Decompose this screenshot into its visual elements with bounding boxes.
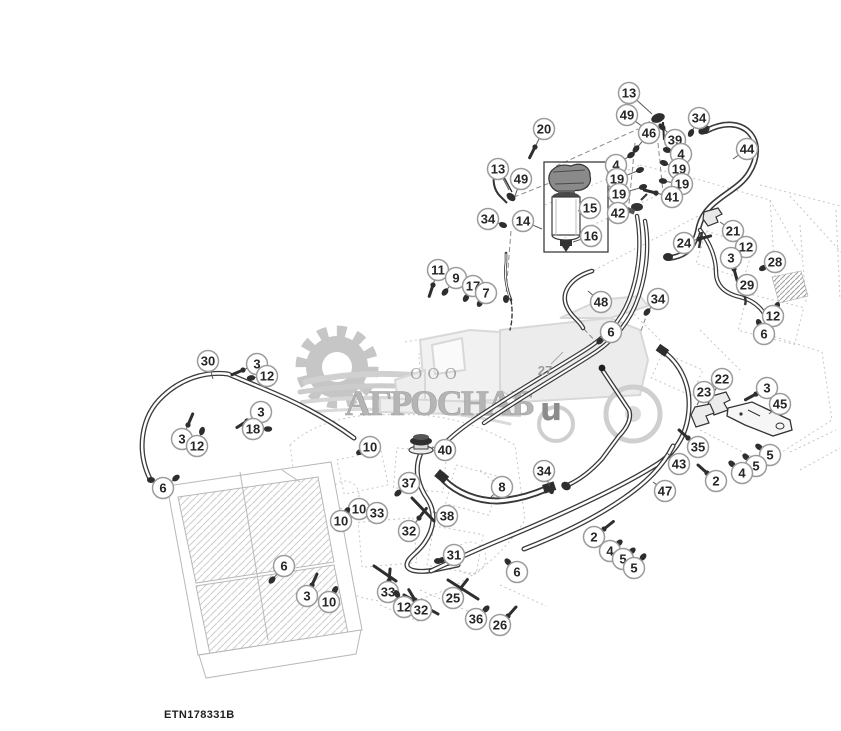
callout-number: 44 [740, 142, 755, 157]
hardware-bolt-head [653, 190, 658, 195]
callout-number: 29 [740, 278, 754, 293]
callout-number: 8 [498, 480, 505, 495]
callout-20: 20 [530, 119, 555, 158]
diagram-page: ООО АГРОСНАБ u [0, 0, 841, 731]
callout-number: 43 [672, 457, 686, 472]
callout-15: 15 [578, 198, 601, 219]
callout-49: 49 [617, 105, 644, 128]
callout-number: 22 [715, 372, 729, 387]
callout-43: 43 [667, 453, 690, 475]
callout-leader [515, 189, 518, 196]
callout-number: 37 [402, 476, 416, 491]
callout-26: 26 [490, 607, 516, 635]
callout-number: 3 [303, 589, 310, 604]
drain-valve [560, 240, 572, 246]
callout-number: 13 [622, 86, 636, 101]
callout-number: 42 [611, 206, 625, 221]
callout-number: 21 [726, 224, 740, 239]
watermark-tail-letter: u [540, 392, 562, 428]
callout-number: 49 [620, 108, 634, 123]
callout-number: 18 [246, 422, 260, 437]
callout-number: 48 [594, 295, 608, 310]
hardware-bolt-head [532, 144, 537, 149]
hardware-clamp [658, 178, 667, 185]
callout-number: 20 [537, 122, 551, 137]
hardware-bolt-head [696, 236, 701, 241]
callout-number: 35 [691, 440, 705, 455]
hardware-bolt-head [416, 515, 421, 520]
callout-37: 37 [393, 473, 419, 498]
callout-number: 6 [607, 325, 614, 340]
callout-35: 35 [679, 430, 708, 458]
callout-number: 11 [431, 263, 445, 278]
callout-number: 19 [612, 187, 626, 202]
callout-number: 13 [491, 162, 505, 177]
hardware-clamp [198, 426, 206, 436]
callout-number: 46 [642, 126, 656, 141]
callout-32: 32 [409, 590, 432, 621]
callout-34: 34 [478, 209, 508, 230]
callout-number: 33 [370, 506, 384, 521]
callout-leader [637, 100, 652, 114]
hardware-clamp [264, 426, 272, 432]
callout-13: 13 [488, 159, 510, 191]
plain-label-text: 27 [538, 363, 552, 378]
callout-49: 49 [511, 169, 532, 197]
callout-number: 41 [665, 190, 679, 205]
callout-number: 38 [440, 509, 454, 524]
callout-number: 3 [178, 432, 185, 447]
callout-leader [588, 291, 593, 295]
callout-28: 28 [758, 252, 786, 273]
callout-42: 42 [608, 203, 634, 224]
callout-number: 6 [760, 327, 767, 342]
callout-number: 16 [584, 229, 598, 244]
callout-number: 10 [363, 440, 377, 455]
callout-number: 5 [766, 448, 773, 463]
callout-14: 14 [513, 211, 543, 232]
hardware-clamp [659, 159, 669, 167]
callout-leader [733, 155, 738, 159]
callout-19: 19 [609, 183, 648, 204]
callout-33: 33 [367, 503, 388, 524]
callout-7: 7 [475, 283, 496, 309]
callout-number: 24 [677, 236, 692, 251]
hardware-bolt-head [430, 282, 435, 287]
callout-36: 36 [466, 604, 491, 629]
callout-47: 47 [653, 481, 676, 502]
callout-number: 14 [516, 214, 531, 229]
callout-number: 10 [334, 514, 348, 529]
callout-2: 2 [698, 465, 726, 491]
hardware-clamp [687, 128, 696, 138]
callout-number: 47 [658, 484, 672, 499]
callout-number: 12 [260, 369, 274, 384]
ghost-hatch-patch [772, 271, 808, 303]
callout-12: 12 [763, 301, 784, 326]
callout-number: 32 [414, 603, 428, 618]
callout-number: 30 [201, 354, 215, 369]
filler-cap-40 [409, 434, 433, 454]
callout-38: 38 [433, 506, 458, 527]
callout-number: 12 [766, 309, 780, 324]
callout-46: 46 [631, 123, 659, 155]
callout-number: 6 [159, 481, 166, 496]
callout-number: 28 [768, 255, 782, 270]
callout-number: 6 [513, 565, 520, 580]
callout-number: 10 [322, 595, 336, 610]
callout-number: 2 [590, 530, 597, 545]
tube-29 [700, 230, 769, 327]
callout-31: 31 [437, 545, 464, 566]
callout-number: 4 [738, 466, 746, 481]
callout-number: 45 [773, 397, 787, 412]
callout-number: 3 [727, 251, 734, 266]
callout-number: 40 [438, 443, 452, 458]
callout-number: 5 [630, 561, 637, 576]
callout-number: 32 [402, 524, 416, 539]
callout-29: 29 [737, 275, 758, 296]
callout-number: 7 [482, 286, 489, 301]
hardware-clamp [171, 473, 181, 483]
callout-number: 2 [712, 474, 719, 489]
callout-number: 25 [446, 591, 460, 606]
parts-diagram-canvas: ООО АГРОСНАБ u [0, 0, 841, 731]
ghost-radiator [167, 462, 362, 678]
callout-number: 12 [739, 240, 753, 255]
callout-leader [720, 222, 724, 225]
callout-leader [533, 225, 542, 229]
callout-number: 12 [190, 439, 204, 454]
figure-id-label: ETN178331B [164, 709, 235, 721]
callout-18: 18 [243, 419, 273, 440]
callout-number: 5 [752, 459, 759, 474]
callout-3: 3 [721, 248, 742, 281]
callout-44: 44 [733, 139, 758, 160]
callout-45: 45 [769, 394, 791, 415]
hardware-bolt-head [240, 367, 245, 372]
callout-number: 15 [583, 201, 597, 216]
callout-number: 26 [493, 618, 507, 633]
callout-number: 31 [447, 548, 461, 563]
callout-6: 6 [503, 557, 527, 582]
callout-number: 3 [763, 381, 770, 396]
callout-number: 34 [537, 464, 552, 479]
watermark-company-text: АГРОСНАБ [345, 383, 535, 423]
callout-number: 34 [481, 212, 496, 227]
callout-number: 34 [651, 292, 666, 307]
callout-40: 40 [432, 440, 456, 461]
hardware-clamp [498, 221, 508, 229]
callout-32: 32 [399, 508, 427, 541]
callout-number: 34 [692, 111, 707, 126]
callout-number: 6 [280, 559, 287, 574]
callout-12: 12 [187, 426, 208, 456]
callout-10: 10 [355, 437, 381, 458]
hardware-clamp [635, 166, 645, 174]
watermark-prefix-text: ООО [410, 365, 462, 383]
callout-number: 23 [697, 385, 711, 400]
callout-number: 9 [452, 271, 459, 286]
callout-number: 10 [352, 502, 366, 517]
callout-8: 8 [491, 477, 513, 498]
filter-head [549, 164, 591, 192]
watermark: ООО АГРОСНАБ u [300, 296, 660, 441]
callout-number: 33 [381, 585, 395, 600]
callout-41: 41 [644, 187, 682, 208]
bracket-23 [691, 404, 714, 427]
callout-number: 49 [514, 172, 528, 187]
callout-number: 36 [469, 612, 483, 627]
hardware-bolt-head [185, 422, 190, 427]
callout-number: 3 [257, 405, 264, 420]
callout-number: 12 [397, 600, 411, 615]
